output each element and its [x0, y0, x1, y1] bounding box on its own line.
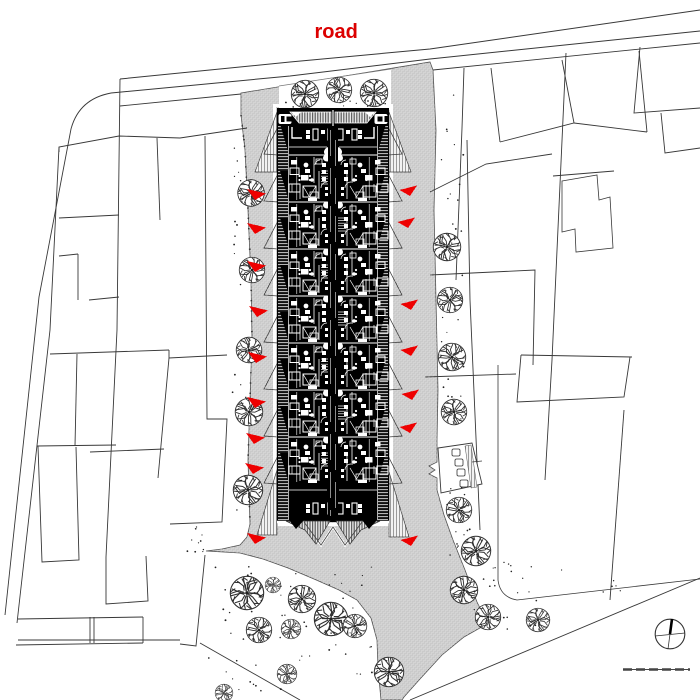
- svg-text:road: road: [315, 21, 358, 43]
